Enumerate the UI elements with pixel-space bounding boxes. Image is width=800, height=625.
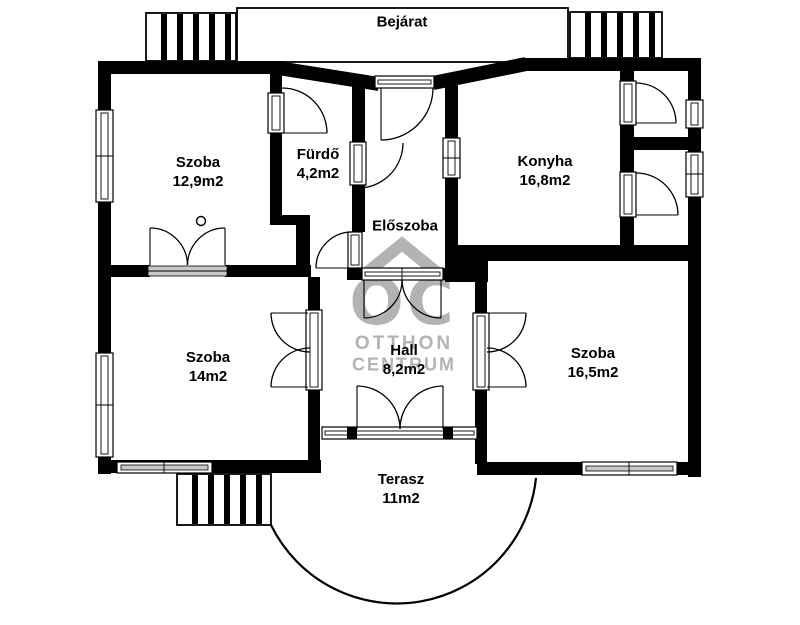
- balcony-door-szoba1: [150, 228, 225, 265]
- room-area: 16,5m2: [568, 363, 619, 382]
- room-area: 11m2: [378, 489, 424, 508]
- column-symbol: [197, 217, 206, 226]
- door-konyha-kamra1: [620, 81, 676, 125]
- room-name: Fürdő: [297, 145, 340, 164]
- stairs-terrace: [177, 474, 271, 525]
- window-szoba1-left: [96, 110, 113, 202]
- terrace-door-post-left: [347, 427, 357, 439]
- room-name: Terasz: [378, 470, 424, 489]
- french-door-eloszoba-hall: [364, 280, 441, 318]
- room-name: Konyha: [517, 152, 572, 171]
- window-kamra2-right: [686, 152, 703, 197]
- sill-balcony-door: [148, 266, 227, 276]
- french-door-hall-terasz: [357, 386, 443, 429]
- door-entrance: [375, 76, 434, 140]
- stairs-top-right: [570, 12, 662, 58]
- room-area: 14m2: [186, 367, 230, 386]
- room-area: 8,2m2: [383, 360, 426, 379]
- window-kamra1-right: [686, 100, 703, 128]
- room-label-eloszoba: Előszoba: [372, 217, 438, 236]
- room-label-szoba1: Szoba 12,9m2: [173, 153, 224, 191]
- room-area: 12,9m2: [173, 172, 224, 191]
- french-door-hall-szoba2: [271, 310, 322, 390]
- room-label-terasz: Terasz 11m2: [378, 470, 424, 508]
- room-label-furdo: Fürdő 4,2m2: [297, 145, 340, 183]
- room-label-szoba3: Szoba 16,5m2: [568, 344, 619, 382]
- room-label-konyha: Konyha 16,8m2: [517, 152, 572, 190]
- room-name: Bejárat: [377, 13, 428, 32]
- room-name: Szoba: [173, 153, 224, 172]
- room-name: Szoba: [568, 344, 619, 363]
- floorplan: OC OTTHON CENTRUM: [0, 0, 800, 625]
- room-label-bejarat: Bejárat: [377, 13, 428, 32]
- door-furdo-eloszoba: [350, 142, 403, 188]
- room-area: 16,8m2: [517, 171, 572, 190]
- door-konyha-kamra2: [620, 172, 678, 217]
- door-szoba1-furdo: [268, 88, 327, 133]
- window-szoba3-bottom: [582, 462, 677, 475]
- terrace-door-post-right: [443, 427, 453, 439]
- room-area: 4,2m2: [297, 164, 340, 183]
- window-eloszoba-konyha: [443, 138, 460, 178]
- room-label-szoba2: Szoba 14m2: [186, 348, 230, 386]
- room-label-hall: Hall 8,2m2: [383, 341, 426, 379]
- room-name: Szoba: [186, 348, 230, 367]
- door-kamra-eloszoba: [316, 232, 362, 268]
- threshold-eloszoba-hall: [362, 268, 443, 280]
- french-door-hall-szoba3: [473, 313, 526, 390]
- room-name: Előszoba: [372, 217, 438, 236]
- window-szoba2-bottom: [117, 462, 212, 473]
- window-szoba2-left: [96, 353, 113, 457]
- stairs-top-left: [146, 13, 236, 61]
- room-name: Hall: [383, 341, 426, 360]
- floorplan-drawing: [0, 0, 800, 625]
